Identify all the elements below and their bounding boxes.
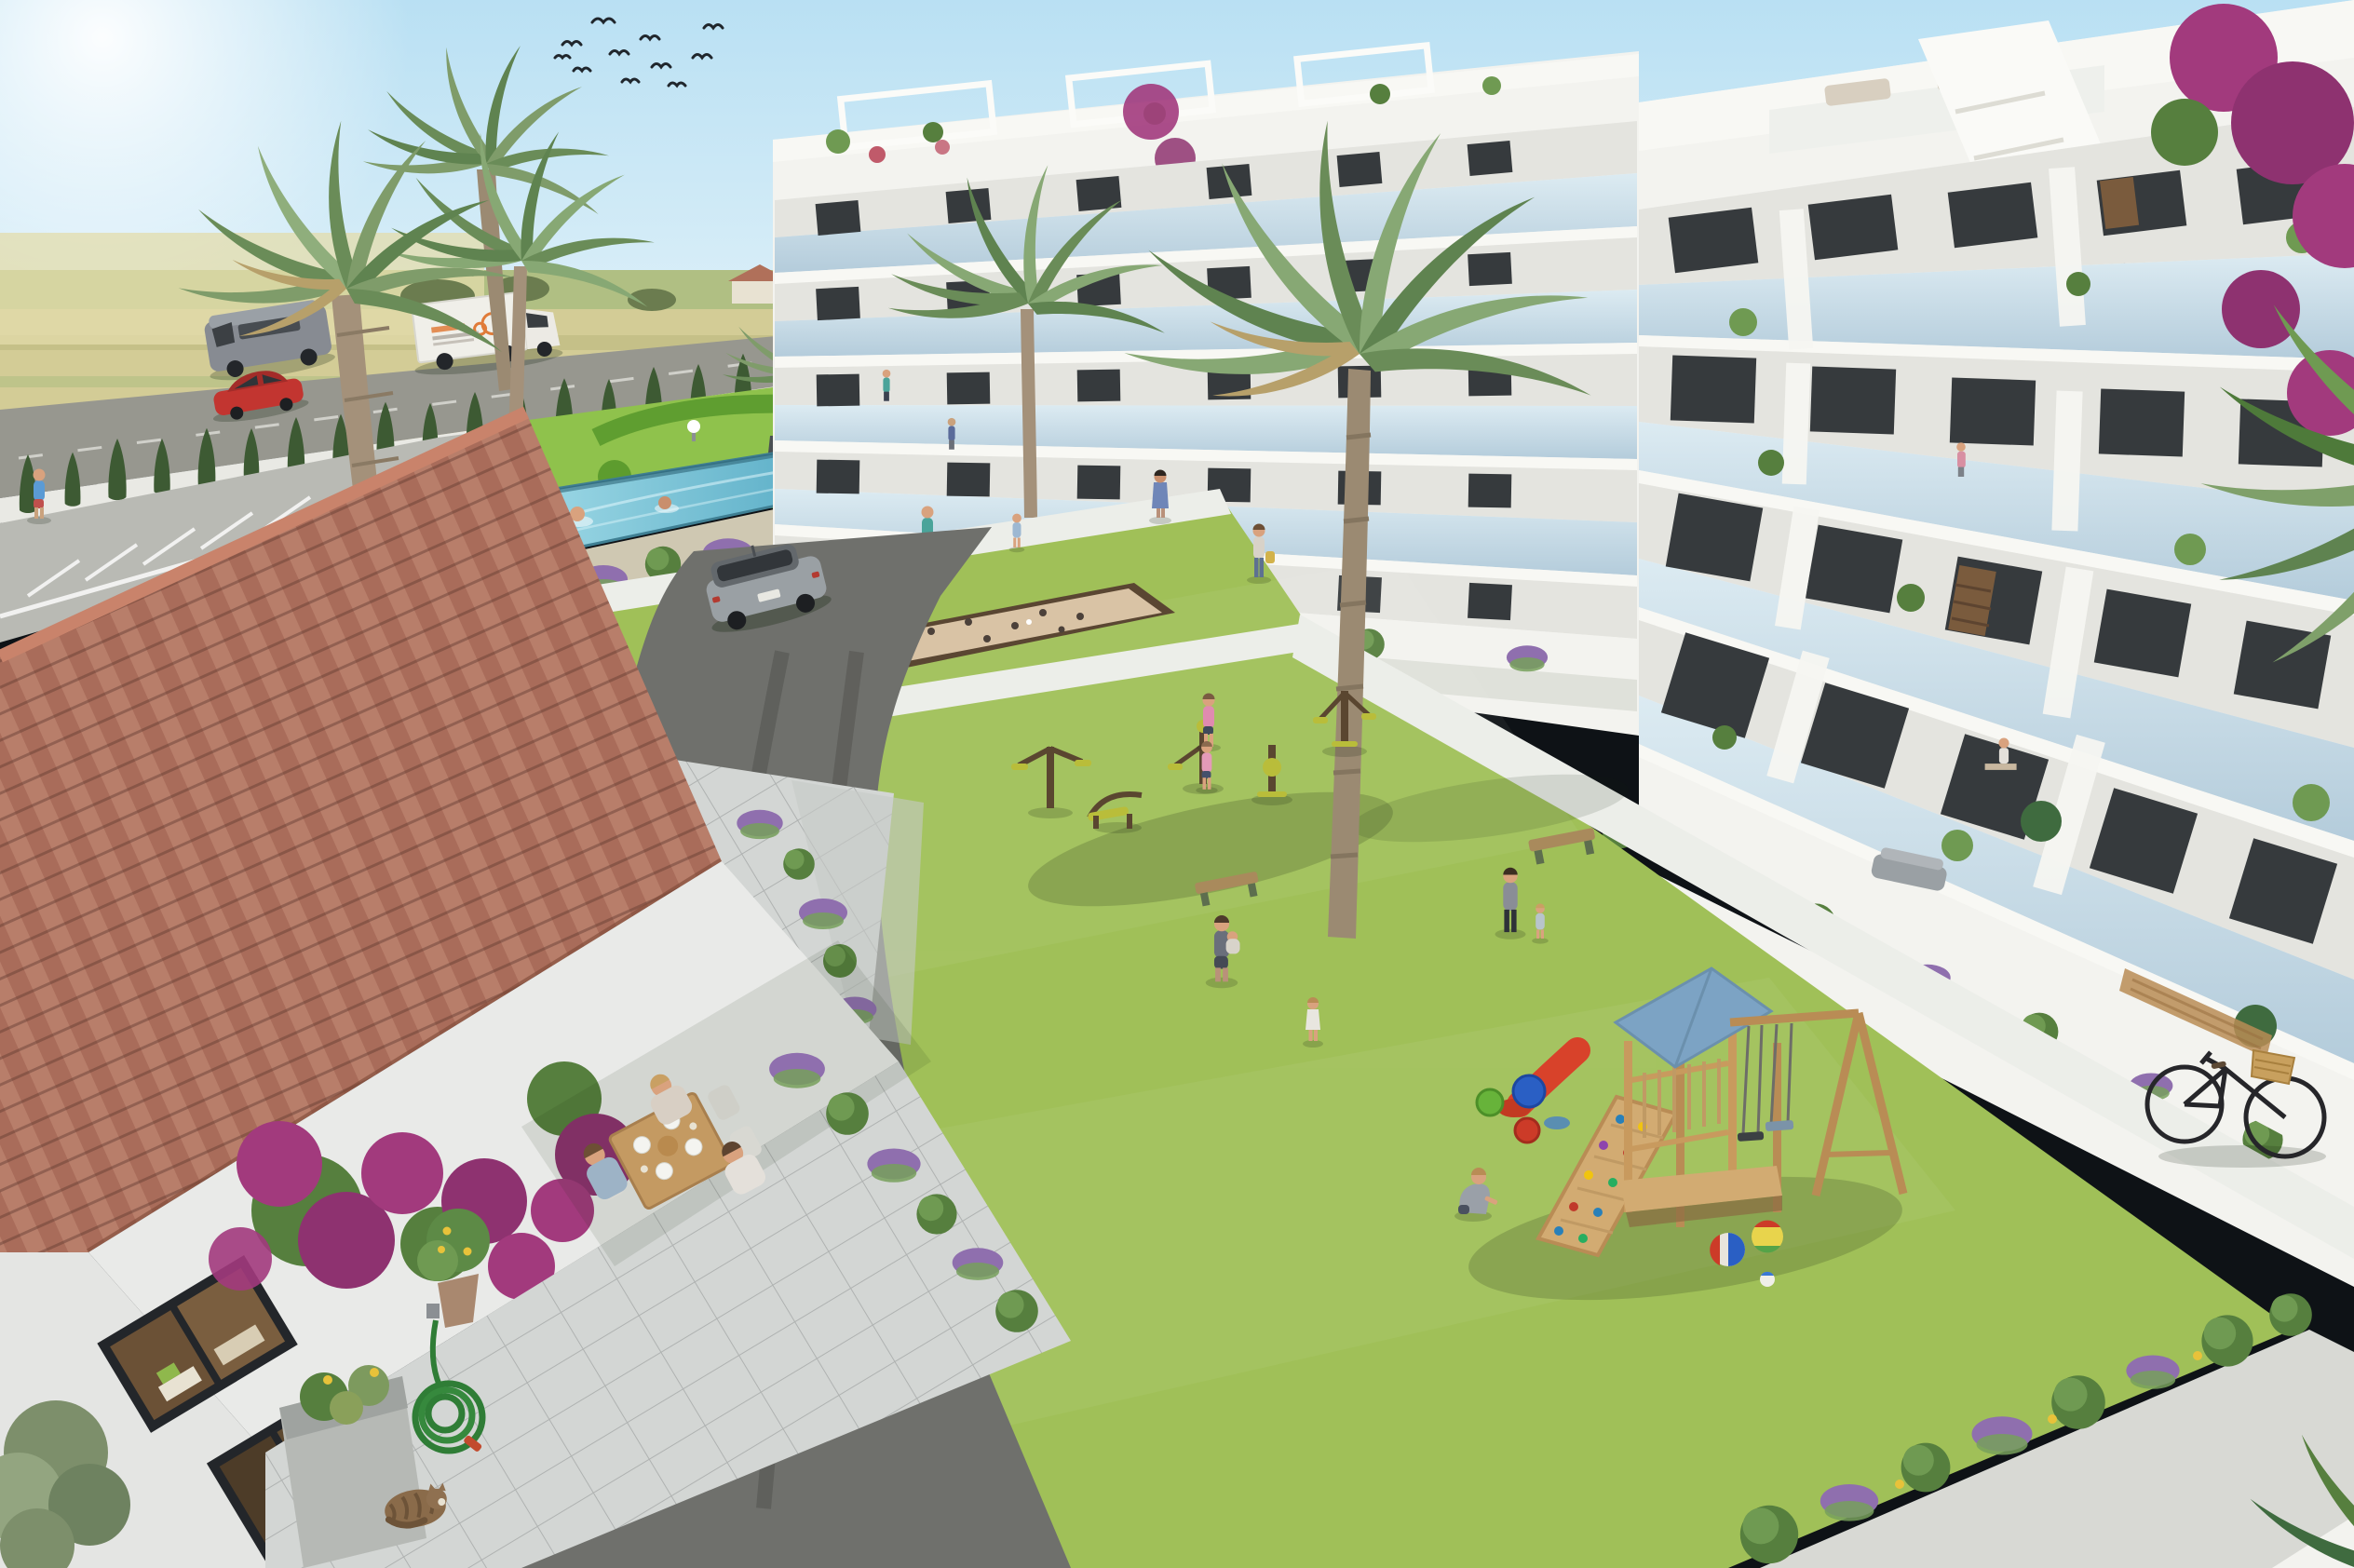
render-canvas: Aerial 3D architectural rendering of a M… (0, 0, 2354, 1568)
swing-seat (1765, 1120, 1794, 1131)
tote-bag (1265, 551, 1275, 563)
architectural-render: Aerial 3D architectural rendering of a M… (0, 0, 2354, 1568)
tap (426, 1304, 440, 1318)
jack-ball (1026, 619, 1032, 625)
monstera (2021, 801, 2062, 842)
terrace-lavender (1507, 645, 1548, 671)
flower-box (935, 140, 950, 155)
bougainvillea (1123, 84, 1179, 140)
desk (1985, 764, 2017, 770)
planter-trough (279, 1365, 426, 1568)
flower-box (869, 146, 886, 163)
baby-bundle (1226, 939, 1240, 953)
